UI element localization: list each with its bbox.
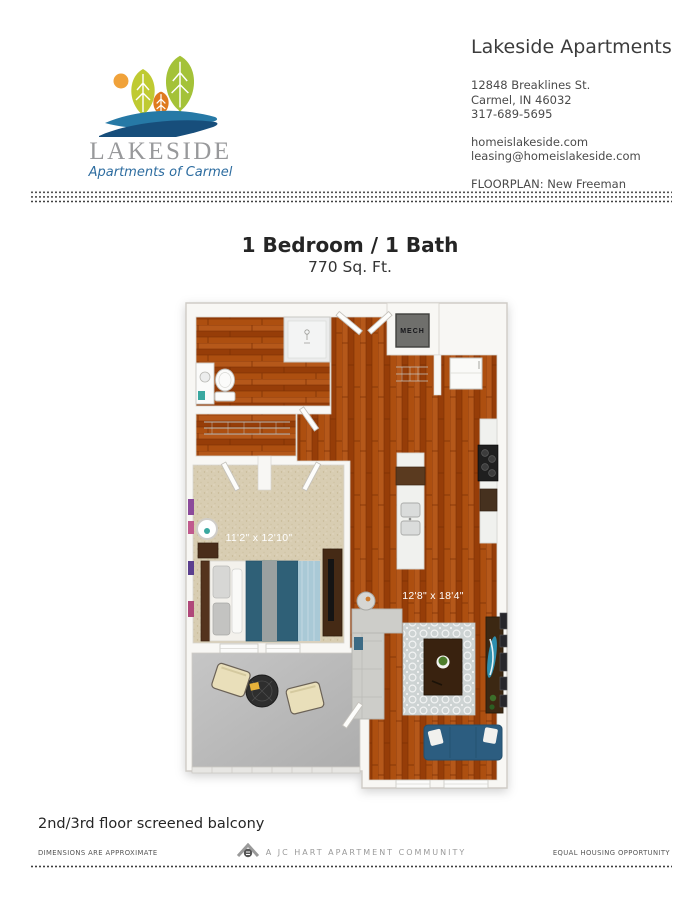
balcony-screen [192, 767, 360, 773]
email: leasing@homeislakeside.com [471, 149, 681, 164]
dotted-separator-top [30, 190, 672, 204]
footer: DIMENSIONS ARE APPROXIMATE A JC HART APA… [30, 843, 672, 861]
bedroom-wall-stub [258, 456, 271, 490]
toilet [215, 369, 235, 401]
equal-housing-note: EQUAL HOUSING OPPORTUNITY [553, 849, 670, 857]
floorplan-name: FLOORPLAN: New Freeman [471, 177, 681, 192]
dresser-tv [323, 549, 342, 636]
wall-mirror [197, 519, 217, 539]
stove [478, 445, 498, 481]
sun-icon [113, 74, 128, 89]
kitchen-island [396, 453, 425, 569]
company-name: Lakeside Apartments [471, 36, 681, 58]
logo-art [86, 35, 236, 137]
logo: LAKESIDE Apartments of Carmel [78, 35, 243, 180]
floor-lamp [357, 592, 375, 610]
mech-label: MECH [400, 328, 425, 335]
house-roof-icon [236, 843, 260, 859]
floor-plan: MECH [184, 301, 539, 801]
living-dimension-label: 12'8" x 18'4" [402, 590, 464, 602]
vanity-sink [196, 363, 214, 404]
hall-closet-floor [196, 414, 296, 456]
community-credit-text: A JC HART APARTMENT COMMUNITY [266, 848, 467, 857]
shower [284, 317, 330, 362]
cabinet [480, 489, 497, 511]
kitchen-counter [478, 419, 498, 543]
dotted-separator-bottom [30, 864, 672, 869]
balcony-note: 2nd/3rd floor screened balcony [38, 816, 264, 832]
bedroom-dimension-label: 11'2" x 12'10" [226, 532, 293, 544]
bed [201, 561, 320, 641]
header-contact-block: Lakeside Apartments 12848 Breaklines St.… [471, 36, 681, 191]
patio-table [246, 675, 278, 707]
phone-number: 317-689-5695 [471, 107, 681, 122]
address-line1: 12848 Breaklines St. [471, 78, 681, 93]
coffee-table [424, 639, 462, 695]
nook-wall [434, 355, 441, 395]
address-line2: Carmel, IN 46032 [471, 93, 681, 108]
bar-counter [396, 467, 425, 485]
logo-name: LAKESIDE [78, 139, 243, 164]
plan-title: 1 Bedroom / 1 Bath [0, 233, 700, 257]
mech-closet: MECH [387, 303, 439, 355]
plan-area: 770 Sq. Ft. [0, 258, 700, 276]
flyer-page: LAKESIDE Apartments of Carmel Lakeside A… [0, 0, 700, 906]
refrigerator [450, 358, 482, 389]
website: homeislakeside.com [471, 135, 681, 150]
nightstand [198, 543, 218, 558]
logo-tagline: Apartments of Carmel [78, 165, 243, 180]
sofa-blue [424, 725, 502, 760]
